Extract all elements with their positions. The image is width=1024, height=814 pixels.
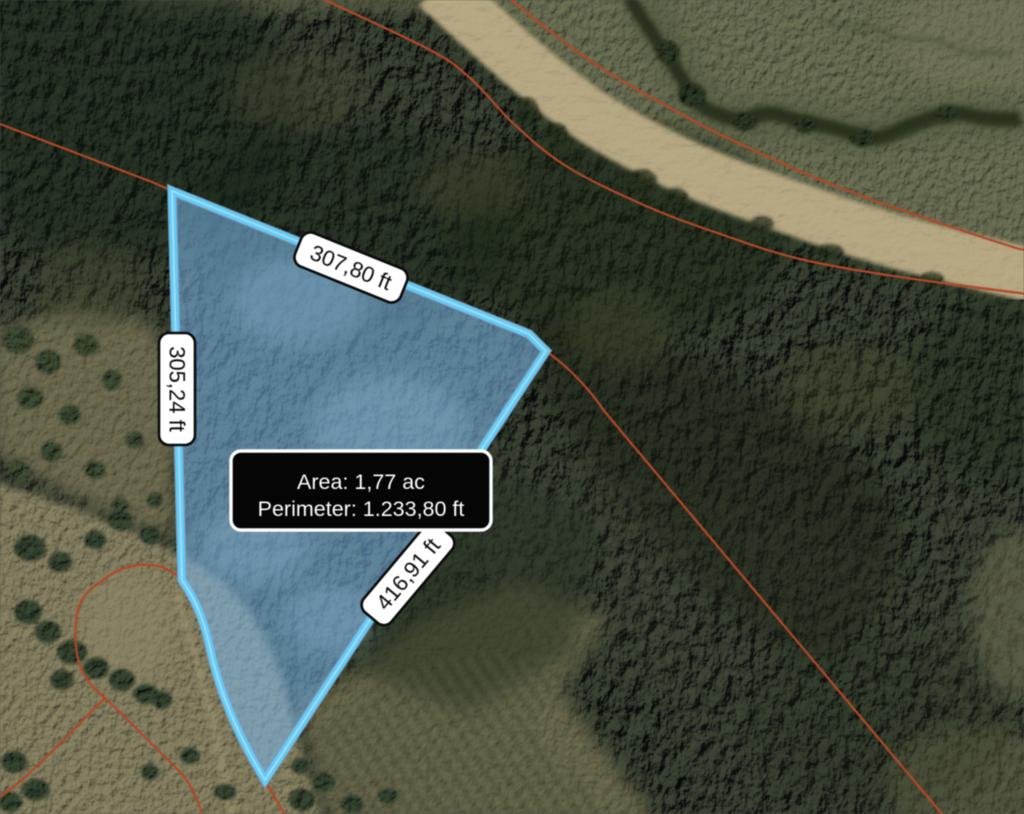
svg-text:Area: 1,77 ac: Area: 1,77 ac	[297, 470, 425, 494]
svg-text:305,24 ft: 305,24 ft	[165, 346, 190, 432]
svg-text:Perimeter: 1.233,80 ft: Perimeter: 1.233,80 ft	[258, 497, 465, 521]
